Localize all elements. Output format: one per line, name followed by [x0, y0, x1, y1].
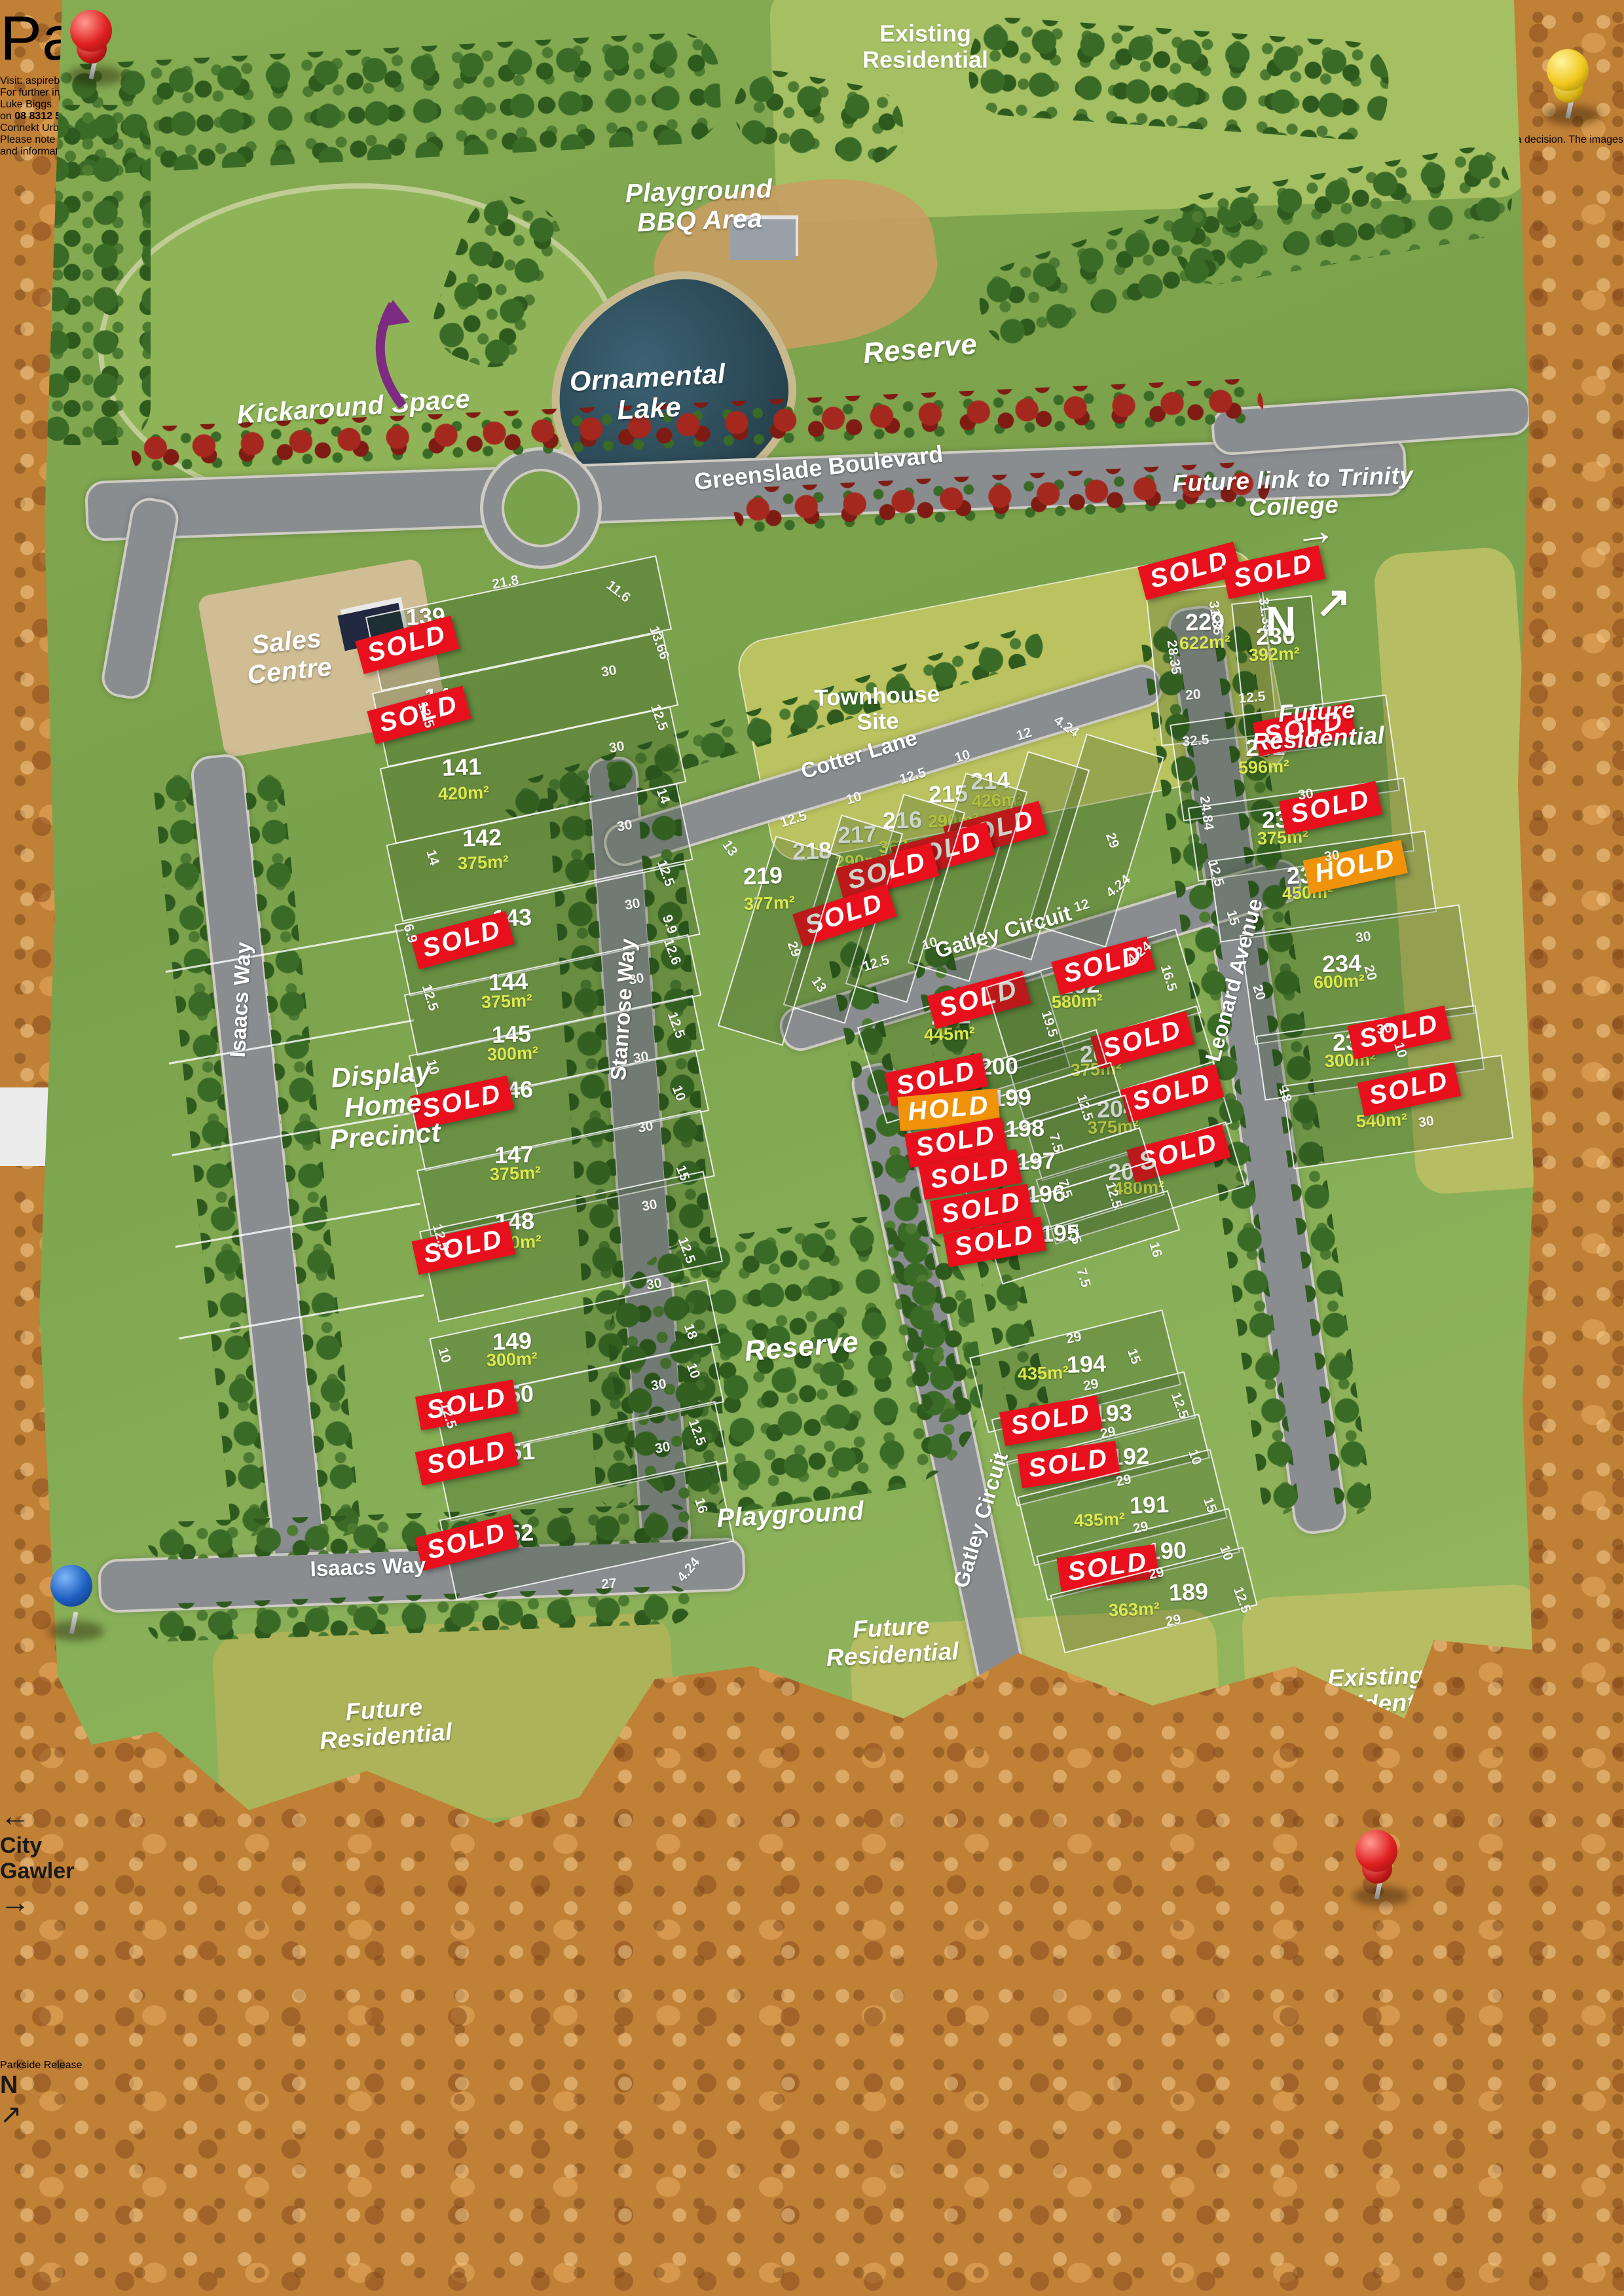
- map-label: Ornamental Lake: [568, 358, 728, 428]
- dimension-label: 7.5: [1073, 1267, 1093, 1290]
- lot-number-198: 198: [1005, 1114, 1045, 1143]
- lot-size-141: 420m²: [437, 782, 489, 805]
- lot-size-189: 363m²: [1108, 1599, 1160, 1621]
- dimension-label: 29: [1164, 1612, 1183, 1630]
- lot-number-189: 189: [1168, 1578, 1209, 1607]
- dimension-label: 30: [623, 896, 641, 914]
- map-label: Reserve: [862, 328, 978, 370]
- lot-size-149: 300m²: [486, 1349, 538, 1371]
- dimension-label: 30: [1418, 1113, 1435, 1131]
- map-label: ↗: [1315, 578, 1351, 627]
- dimension-label: 30: [1355, 928, 1372, 946]
- lot-size-234: 600m²: [1313, 971, 1365, 993]
- pushpin-red-inset-icon: [1341, 1830, 1420, 1915]
- lot-size-145: 300m²: [487, 1043, 538, 1065]
- dimension-label: 29: [1115, 1472, 1133, 1490]
- lot-size-230: 392m²: [1248, 644, 1300, 666]
- map-label: Sales Centre: [243, 623, 333, 691]
- inset-north-arrow-icon: ↗: [0, 2100, 1624, 2130]
- parkside-lots: [0, 1642, 50, 1800]
- map-label: Future Residential: [1250, 695, 1386, 756]
- lot-number-219: 219: [743, 862, 783, 890]
- parkside-release-label: Parkside Release: [0, 2060, 1624, 2071]
- pushpin-yellow-icon: [1532, 49, 1611, 134]
- map-label: Playground BBQ Area: [625, 174, 774, 238]
- parkside-region: [0, 1327, 140, 1502]
- corkboard: 139SOLD140SOLD141420m²142375m²143SOLD144…: [0, 0, 1624, 2296]
- dimension-label: 30: [640, 1197, 658, 1215]
- pushpin-blue-icon: [36, 1565, 115, 1650]
- dimension-label: 20: [1185, 687, 1201, 704]
- lot-size-201: 445m²: [923, 1023, 975, 1046]
- tree-belt: [969, 192, 1257, 357]
- map-label: →: [1291, 505, 1339, 558]
- dimension-label: 30: [650, 1376, 667, 1394]
- dimension-label: 30: [600, 663, 618, 681]
- inset-north-label: N: [0, 2071, 1624, 2100]
- map-label: Townhouse Site: [814, 681, 941, 737]
- lot-number-142: 142: [462, 824, 502, 852]
- dimension-label: 30: [1376, 1020, 1393, 1038]
- lot-size-191: 435m²: [1073, 1509, 1125, 1531]
- lot-size-144: 375m²: [481, 991, 532, 1013]
- future-release-arrow-icon: [347, 275, 452, 419]
- pushpin-red-icon: [56, 10, 134, 95]
- lot-size-219: 377m²: [743, 892, 795, 915]
- dimension-label: 29: [1132, 1519, 1150, 1537]
- dimension-label: 29: [1147, 1565, 1166, 1583]
- map-label: Future Residential: [317, 1692, 453, 1755]
- map-label: Existing Residential: [862, 21, 988, 74]
- lot-size-142: 375m²: [457, 852, 509, 874]
- dimension-label: 29: [1082, 1376, 1100, 1394]
- map-label: Isaacs Way: [310, 1553, 426, 1581]
- dimension-label: 32.5: [1182, 732, 1210, 750]
- roundabout: [483, 450, 599, 566]
- dimension-label: 13: [718, 838, 740, 860]
- lot-number-141: 141: [441, 753, 482, 782]
- dimension-label: 30: [1323, 847, 1340, 865]
- lot-size-202: 580m²: [1051, 991, 1103, 1013]
- dimension-label: 30: [616, 817, 633, 835]
- dimension-label: 27: [600, 1576, 617, 1593]
- lot-number-194: 194: [1066, 1350, 1107, 1379]
- dimension-label: 16: [1145, 1240, 1165, 1259]
- lot-number-191: 191: [1129, 1491, 1170, 1520]
- estate-map: 139SOLD140SOLD141420m²142375m²143SOLD144…: [0, 0, 1624, 1833]
- dimension-label: 30: [608, 738, 625, 757]
- lot-size-231: 596m²: [1238, 756, 1289, 778]
- map-label: Future Residential: [824, 1611, 960, 1671]
- dimension-label: 30: [654, 1439, 671, 1457]
- dimension-label: 30: [632, 1049, 650, 1067]
- dimension-label: 30: [645, 1275, 663, 1294]
- dimension-label: 29: [1099, 1424, 1117, 1442]
- map-label: Display Home Precinct: [324, 1055, 441, 1156]
- dimension-label: 29: [1065, 1329, 1083, 1347]
- lot-size-229: 622m²: [1179, 632, 1230, 654]
- lot-size-147: 375m²: [489, 1163, 541, 1185]
- dimension-label: 30: [637, 1118, 654, 1137]
- lot-size-194: 435m²: [1017, 1362, 1069, 1385]
- dimension-label: 30: [1297, 786, 1314, 803]
- map-label: N: [1266, 598, 1296, 646]
